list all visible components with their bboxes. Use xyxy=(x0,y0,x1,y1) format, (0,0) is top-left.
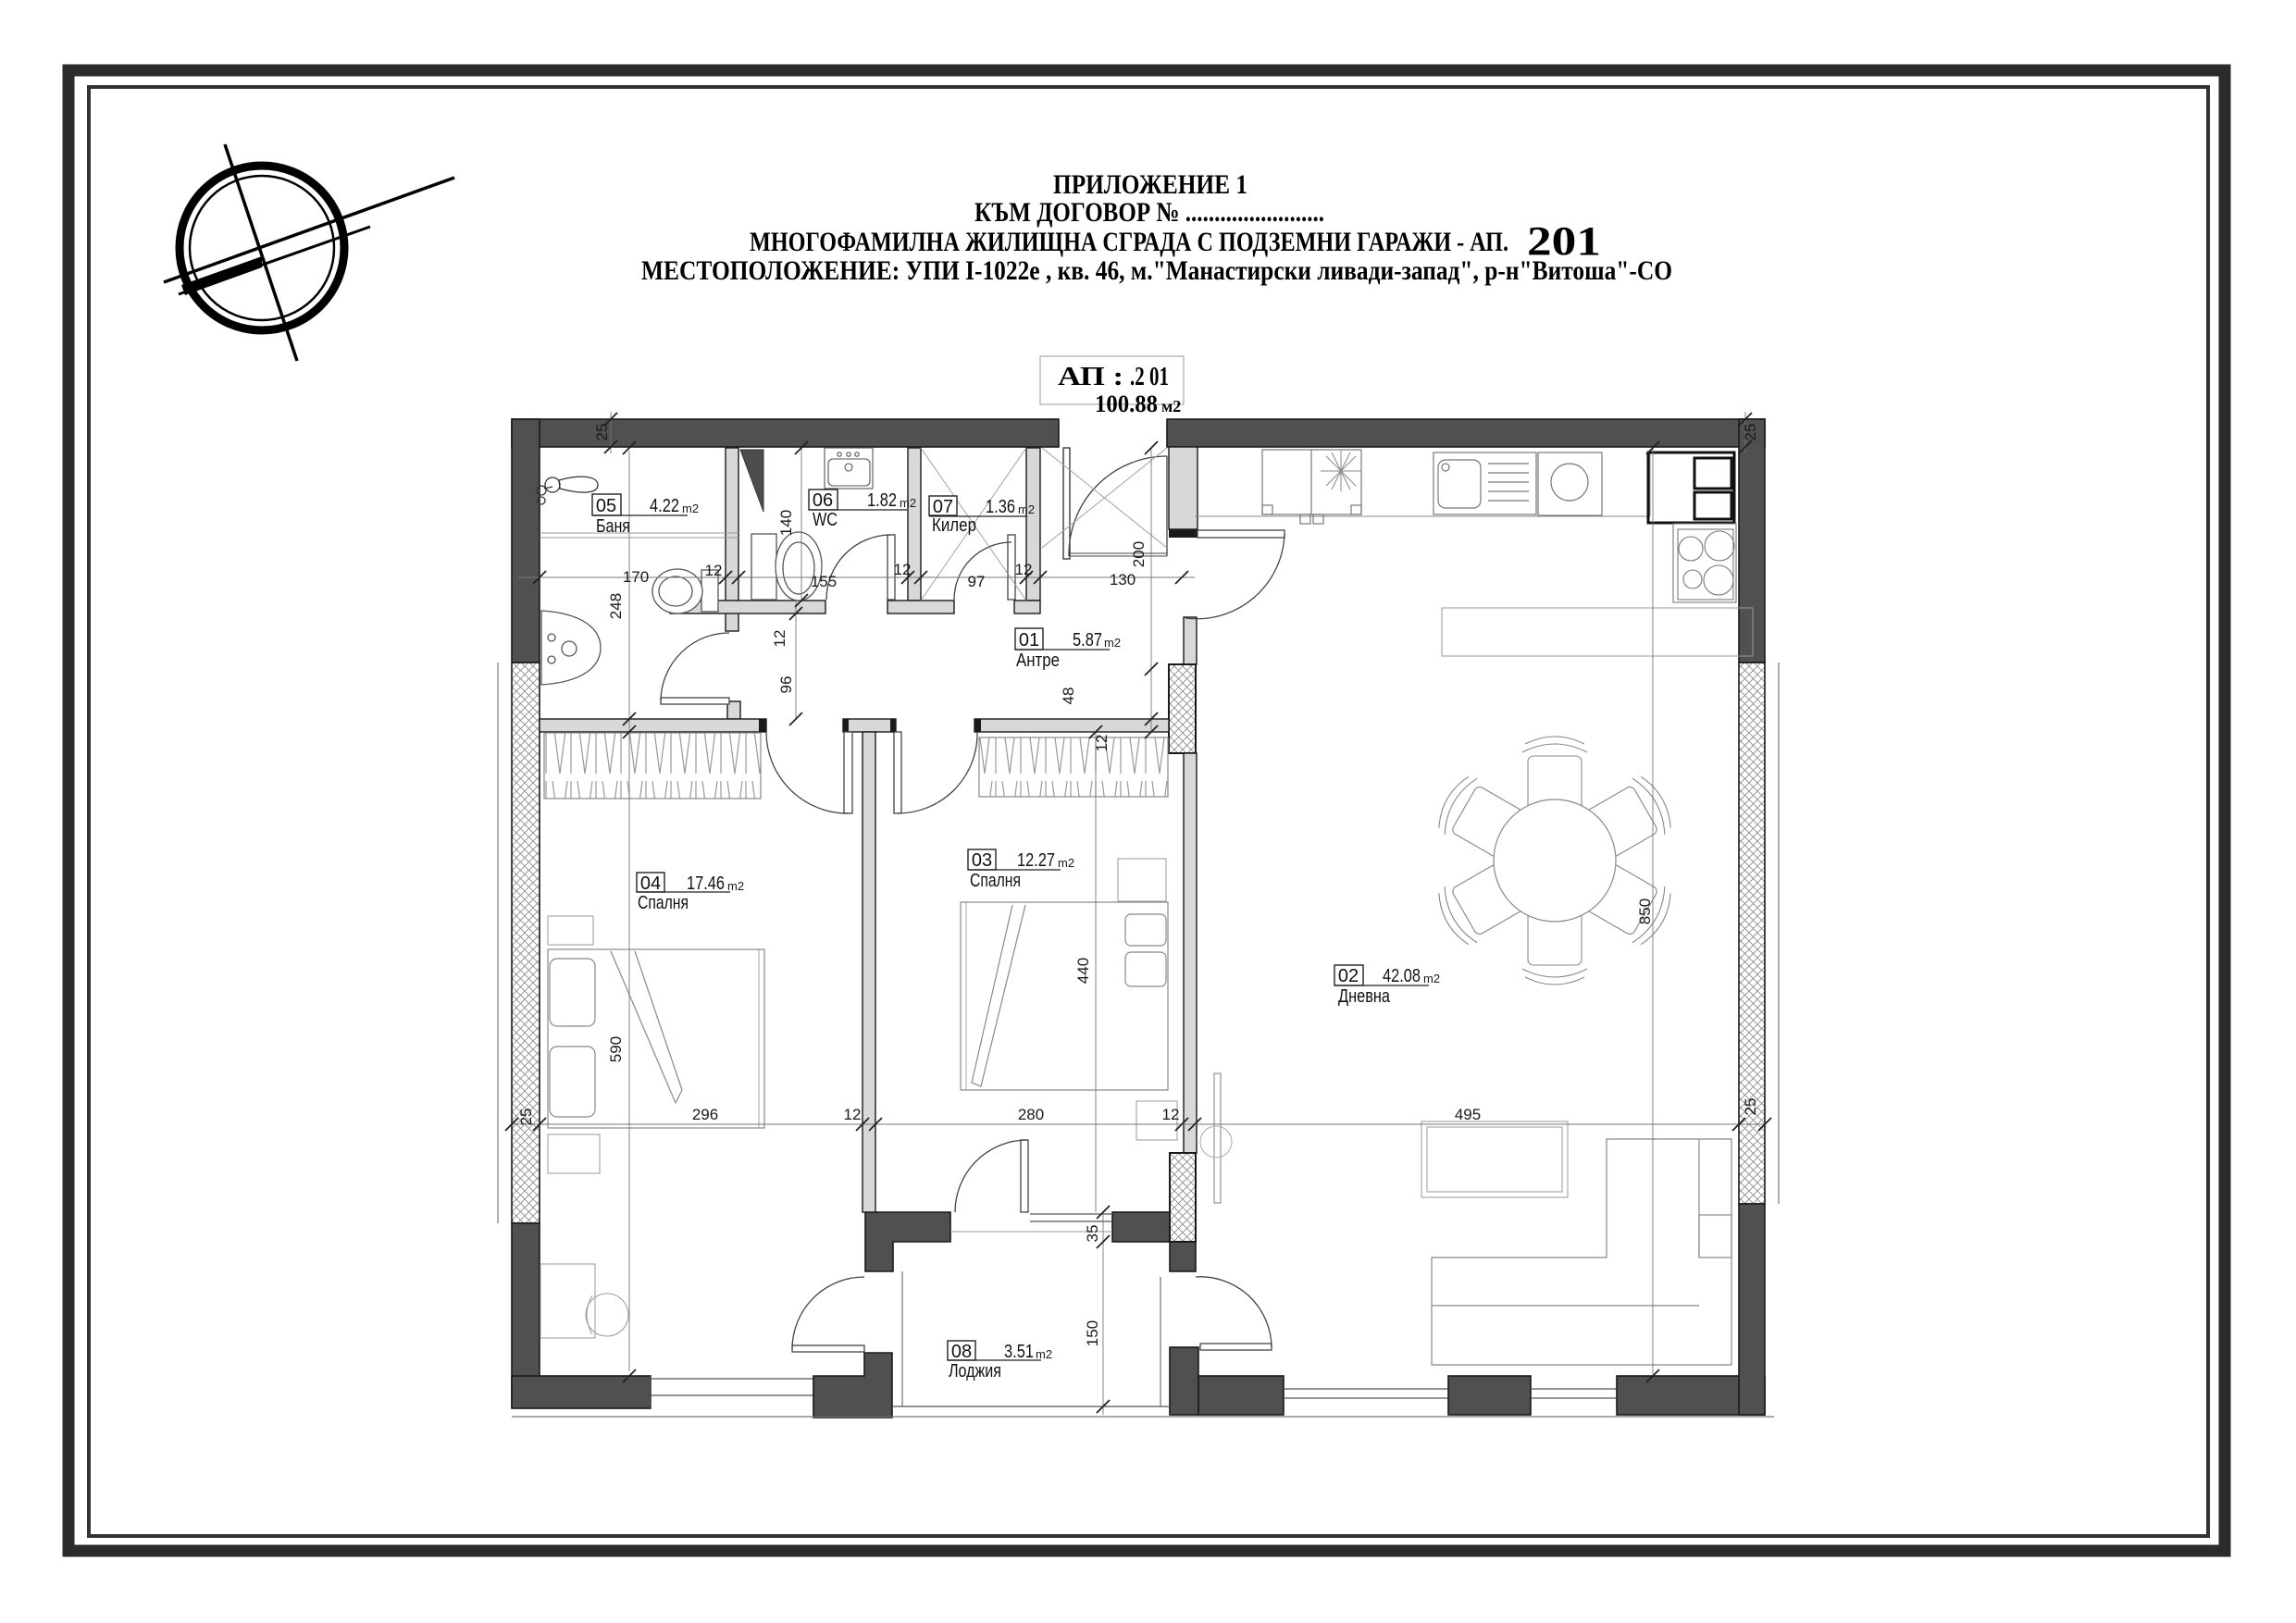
svg-text:12: 12 xyxy=(1162,1106,1180,1123)
svg-text:m2: m2 xyxy=(1018,502,1035,516)
svg-text:08: 08 xyxy=(951,1342,972,1362)
svg-text:17.46: 17.46 xyxy=(687,873,725,894)
svg-text:296: 296 xyxy=(692,1106,718,1123)
svg-text:35: 35 xyxy=(1084,1225,1101,1243)
svg-text:130: 130 xyxy=(1110,571,1136,588)
svg-text:155: 155 xyxy=(811,573,837,590)
svg-text:Спалня: Спалня xyxy=(970,871,1021,891)
svg-text:m2: m2 xyxy=(1104,636,1121,650)
svg-text:25: 25 xyxy=(1742,424,1759,441)
svg-text:850: 850 xyxy=(1636,898,1654,924)
svg-text:Килер: Килер xyxy=(932,515,976,536)
svg-text:4.22: 4.22 xyxy=(650,496,679,516)
svg-text:Спалня: Спалня xyxy=(638,893,689,913)
svg-text:440: 440 xyxy=(1074,958,1092,984)
svg-text:Лоджия: Лоджия xyxy=(949,1361,1001,1381)
svg-text:06: 06 xyxy=(813,490,833,511)
svg-text:495: 495 xyxy=(1455,1106,1481,1123)
svg-text:03: 03 xyxy=(972,850,992,871)
svg-text:АП :: АП : xyxy=(1058,363,1123,391)
svg-text:12: 12 xyxy=(894,561,912,578)
svg-text:200: 200 xyxy=(1130,541,1148,567)
svg-text:07: 07 xyxy=(933,497,953,517)
svg-text:01: 01 xyxy=(1019,630,1039,650)
svg-text:04: 04 xyxy=(640,873,661,894)
svg-text:Антре: Антре xyxy=(1016,650,1060,671)
svg-text:12: 12 xyxy=(771,630,788,648)
svg-text:5.87: 5.87 xyxy=(1073,630,1102,650)
svg-text:140: 140 xyxy=(777,510,795,536)
svg-text:1.36: 1.36 xyxy=(986,497,1015,517)
svg-text:12: 12 xyxy=(705,562,723,579)
svg-text:12: 12 xyxy=(844,1106,862,1123)
svg-text:12: 12 xyxy=(1015,561,1033,578)
svg-text:25: 25 xyxy=(1742,1098,1759,1116)
svg-text:100.88: 100.88 xyxy=(1095,390,1158,417)
svg-text:m2: m2 xyxy=(1423,972,1440,985)
svg-text:12: 12 xyxy=(1093,735,1111,752)
svg-text:m2: m2 xyxy=(1058,856,1074,870)
svg-text:МНОГОФАМИЛНА ЖИЛИЩНА СГРАДА С: МНОГОФАМИЛНА ЖИЛИЩНА СГРАДА С ПОДЗЕМНИ Г… xyxy=(750,227,1508,257)
svg-text:WC: WC xyxy=(813,510,838,530)
svg-text:м2: м2 xyxy=(1161,397,1181,415)
svg-text:Дневна: Дневна xyxy=(1338,986,1391,1007)
svg-text:12.27: 12.27 xyxy=(1017,850,1055,871)
svg-text:05: 05 xyxy=(596,496,616,516)
svg-text:25: 25 xyxy=(593,424,611,441)
svg-text:МЕСТОПОЛОЖЕНИЕ: УПИ I-1022е ,: МЕСТОПОЛОЖЕНИЕ: УПИ I-1022е , кв. 46, м.… xyxy=(641,255,1672,286)
svg-text:Баня: Баня xyxy=(596,516,630,537)
svg-text:150: 150 xyxy=(1084,1320,1101,1346)
svg-text:25: 25 xyxy=(517,1109,535,1126)
svg-text:m2: m2 xyxy=(1036,1347,1052,1361)
svg-text:96: 96 xyxy=(777,676,795,694)
svg-text:m2: m2 xyxy=(727,879,744,893)
svg-text:48: 48 xyxy=(1060,688,1077,705)
svg-text:КЪМ ДОГОВОР № ................: КЪМ ДОГОВОР № ........................ xyxy=(974,197,1324,228)
svg-text:170: 170 xyxy=(623,568,649,586)
svg-text:02: 02 xyxy=(1338,966,1359,986)
svg-text:m2: m2 xyxy=(900,496,916,510)
svg-text:280: 280 xyxy=(1018,1106,1044,1123)
svg-text:1.82: 1.82 xyxy=(867,490,897,511)
svg-text:m2: m2 xyxy=(682,502,699,515)
svg-text:42.08: 42.08 xyxy=(1383,966,1421,986)
svg-text:590: 590 xyxy=(607,1036,625,1062)
svg-text:248: 248 xyxy=(607,593,625,619)
svg-text:.2 01: .2 01 xyxy=(1130,363,1169,391)
svg-text:3.51: 3.51 xyxy=(1004,1342,1034,1362)
svg-text:97: 97 xyxy=(968,573,986,590)
svg-text:ПРИЛОЖЕНИЕ 1: ПРИЛОЖЕНИЕ 1 xyxy=(1053,169,1247,200)
